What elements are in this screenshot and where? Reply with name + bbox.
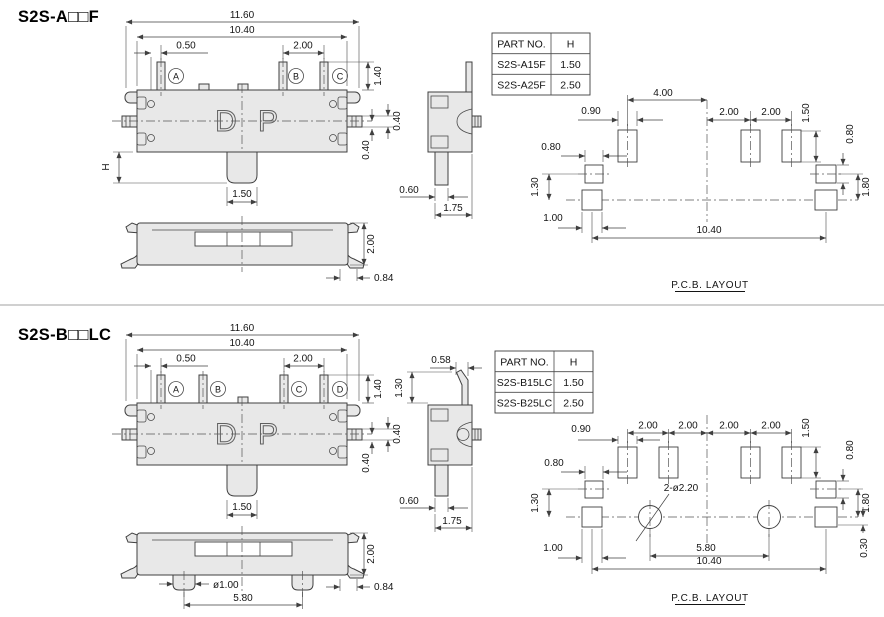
section-s2s-a: S2S-A□□F A B C D P 11.60: [18, 8, 872, 292]
dim-pin-offset: 0.50: [176, 354, 196, 365]
table-header-part: PART NO.: [497, 39, 545, 51]
dim-pcb-hole-offset: 0.30: [859, 538, 870, 558]
hole-callout: 2-ø2.20: [664, 483, 699, 494]
side-view: 0.60 1.75: [399, 62, 481, 219]
dim-pcb-pitch-1: 2.00: [719, 107, 739, 118]
side-view: 0.58 1.30 0.60 1.75: [394, 355, 482, 532]
dim-pin-height: 1.40: [373, 379, 384, 399]
dim-center-offset: 0.40: [361, 453, 372, 473]
table-h-1: 1.50: [563, 377, 584, 389]
dim-pcb-bottom-pad: 1.00: [543, 543, 563, 554]
dim-foot: 0.84: [374, 582, 394, 593]
pin-label-a: A: [173, 72, 179, 82]
dim-pcb-pad-width: 0.90: [571, 424, 591, 435]
dim-side-pin: 0.40: [392, 424, 403, 444]
bent-lead: [457, 370, 469, 405]
datasheet-page: S2S-A□□F A B C D P 11.60: [0, 0, 884, 617]
body-marking-d: D: [215, 418, 237, 451]
section-title: S2S-B□□LC: [18, 326, 111, 344]
dim-pcb-pitch-2: 2.00: [678, 421, 698, 432]
dim-pcb-hole-span: 5.80: [696, 543, 716, 554]
dim-pcb-total: 10.40: [696, 556, 721, 567]
dim-boss-diameter: ø1.00: [213, 580, 239, 591]
pin-label-c: C: [296, 385, 303, 395]
table-header-part: PART NO.: [500, 357, 548, 369]
dim-pin-pitch: 2.00: [293, 41, 313, 52]
dim-pcb-pitch-2: 2.00: [761, 107, 781, 118]
dim-pcb-left-offset: 1.30: [530, 177, 541, 197]
dim-knob-height: H: [101, 163, 112, 170]
technical-drawing: S2S-A□□F A B C D P 11.60: [0, 0, 884, 617]
pcb-layout: 2.00 2.00 2.00 2.00 0.90 1.50 0.80 1.80 …: [530, 415, 872, 605]
bottom-view: 2.00 0.84: [121, 216, 394, 284]
pcb-layout-label: P.C.B. LAYOUT: [671, 280, 748, 291]
dim-pcb-pitch-4: 2.00: [761, 421, 781, 432]
dim-lead-offset: 0.58: [431, 355, 451, 366]
dim-body-width: 10.40: [229, 25, 254, 36]
dim-pin-offset: 0.50: [176, 41, 196, 52]
body-marking-d: D: [215, 105, 237, 138]
dim-pin-height: 1.40: [373, 66, 384, 86]
dim-pcb-pad-height: 1.50: [801, 418, 812, 438]
part-table: PART NO. H S2S-A15F 1.50 S2S-A25F 2.50: [492, 33, 590, 95]
dim-stem-width: 0.60: [399, 185, 419, 196]
body-marking-p: P: [258, 105, 278, 138]
dim-boss-span: 5.80: [233, 593, 253, 604]
table-header-h: H: [567, 39, 575, 51]
table-h-1: 1.50: [560, 59, 581, 71]
table-h-2: 2.50: [560, 80, 581, 92]
pin-label-c: C: [337, 72, 344, 82]
table-h-2: 2.50: [563, 398, 584, 410]
dim-pcb-left-pad: 0.80: [544, 458, 564, 469]
dim-pcb-left-offset: 1.30: [530, 493, 541, 513]
dim-pcb-total: 10.40: [696, 225, 721, 236]
dim-foot: 0.84: [374, 273, 394, 284]
table-part-1: S2S-A15F: [497, 59, 545, 71]
dim-depth: 1.75: [442, 516, 462, 527]
section-s2s-b: S2S-B□□LC A B C D D P 11.60: [18, 323, 872, 609]
table-part-1: S2S-B15LC: [497, 377, 553, 389]
pin-label-b: B: [293, 72, 299, 82]
dim-knob-width: 1.50: [232, 189, 252, 200]
slider-knob: [227, 152, 257, 183]
dim-pcb-pitch-3: 2.00: [719, 421, 739, 432]
dim-pcb-right-pad: 0.80: [845, 440, 856, 460]
bottom-view: 2.00 0.84 ø1.00 5.80: [121, 526, 394, 609]
dim-pcb-left-pad: 0.80: [541, 142, 561, 153]
pin-label-b: B: [215, 385, 221, 395]
dim-pcb-right-offset: 1.80: [861, 177, 872, 197]
dim-pcb-bottom-pad: 1.00: [543, 213, 563, 224]
body-marking-p: P: [258, 418, 278, 451]
dim-body-width: 10.40: [229, 338, 254, 349]
dim-pcb-gap: 4.00: [653, 88, 673, 99]
pcb-layout: 4.00 0.90 2.00 2.00 1.50 0.80 1.80 0.80 …: [530, 88, 872, 292]
pin-label-a: A: [173, 385, 179, 395]
table-header-h: H: [570, 357, 578, 369]
dim-total-width: 11.60: [230, 323, 255, 334]
dim-center-offset: 0.40: [361, 140, 372, 160]
dim-bottom-height: 2.00: [366, 544, 377, 564]
table-part-2: S2S-B25LC: [497, 398, 553, 410]
section-title: S2S-A□□F: [18, 8, 99, 26]
pin-label-d: D: [337, 385, 344, 395]
dim-bottom-height: 2.00: [366, 234, 377, 254]
dim-side-pin: 0.40: [392, 111, 403, 131]
part-table: PART NO. H S2S-B15LC 1.50 S2S-B25LC 2.50: [495, 351, 593, 413]
dim-total-width: 11.60: [230, 10, 255, 21]
dim-pin-pitch: 2.00: [293, 354, 313, 365]
dim-knob-width: 1.50: [232, 502, 252, 513]
slider-knob: [227, 465, 257, 496]
dim-pcb-pad-width: 0.90: [581, 106, 601, 117]
dim-depth: 1.75: [443, 203, 463, 214]
dim-pcb-pad-height: 1.50: [801, 103, 812, 123]
dim-pcb-right-pad: 0.80: [845, 124, 856, 144]
table-part-2: S2S-A25F: [497, 80, 545, 92]
pcb-layout-label: P.C.B. LAYOUT: [671, 593, 748, 604]
dim-pcb-pitch-1: 2.00: [638, 421, 658, 432]
dim-lead-height: 1.30: [394, 378, 405, 398]
dim-stem-width: 0.60: [399, 496, 419, 507]
